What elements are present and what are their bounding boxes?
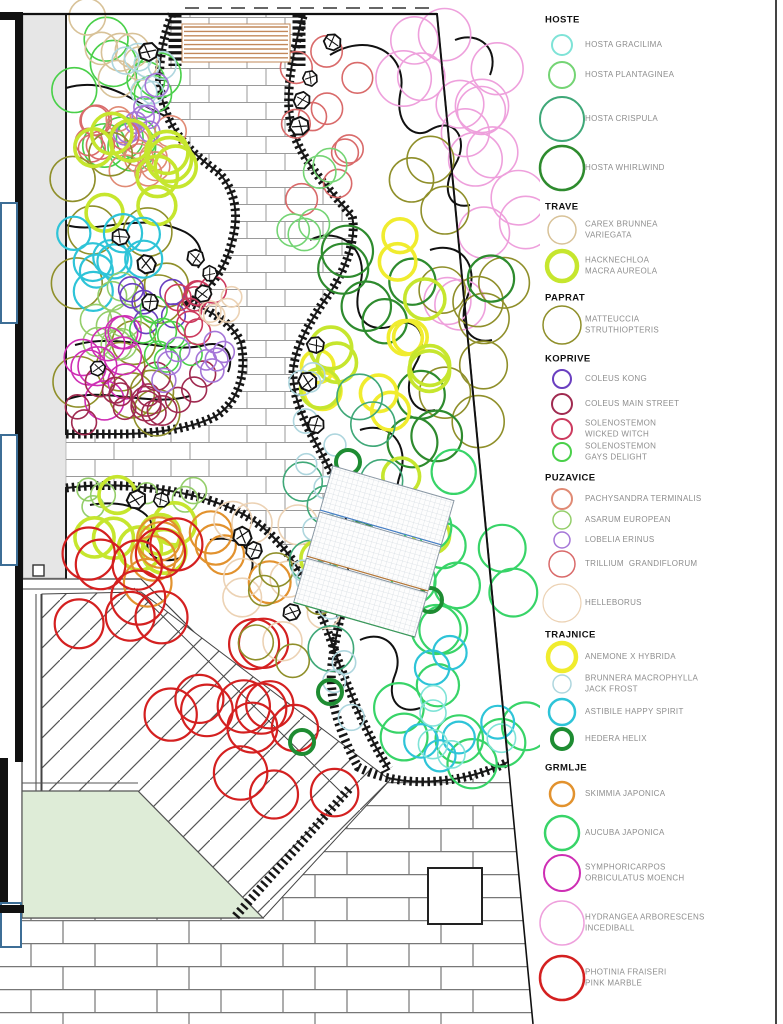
legend-section-header-puzavice: PUZAVICE xyxy=(545,473,596,484)
legend-label-whirlwind: HOSTA WHIRLWIND xyxy=(585,163,665,174)
legend-swatch-mainstreet xyxy=(548,390,576,418)
legend-label-lobelia: LOBELIA ERINUS xyxy=(585,535,655,546)
legend-label-asarum: ASARUM EUROPEAN xyxy=(585,515,671,526)
legend-swatch-hacknechloa xyxy=(540,244,584,288)
legend-swatch-gays xyxy=(549,439,575,465)
legend-swatch-whirlwind xyxy=(535,141,589,195)
legend-swatch-helleborus xyxy=(539,580,585,626)
legend-label-astibile: ASTIBILE HAPPY SPIRIT xyxy=(585,707,684,718)
legend-label-trillium: TRILLIUM GRANDIFLORUM xyxy=(585,559,697,570)
legend-label-hedera: HEDERA HELIX xyxy=(585,734,647,745)
plant-legend-panel: HOSTEHOSTA GRACILIMAHOSTA PLANTAGINEAHOS… xyxy=(540,0,783,1024)
legend-label-plantaginea: HOSTA PLANTAGINEA xyxy=(585,70,674,81)
legend-label-brunnera: BRUNNERA MACROPHYLLA JACK FROST xyxy=(585,674,698,695)
legend-label-pachysandra: PACHYSANDRA TERMINALIS xyxy=(585,494,702,505)
legend-swatch-trillium xyxy=(545,547,579,581)
legend-label-kong: COLEUS KONG xyxy=(585,374,647,385)
legend-swatch-aucuba xyxy=(540,811,584,855)
page-border-line xyxy=(775,0,777,1024)
legend-label-helleborus: HELLEBORUS xyxy=(585,598,642,609)
legend-swatch-gracilima xyxy=(548,31,576,59)
legend-label-carex: CAREX BRUNNEA VARIEGATA xyxy=(585,220,658,241)
legend-label-mainstreet: COLEUS MAIN STREET xyxy=(585,399,679,410)
legend-label-gracilima: HOSTA GRACILIMA xyxy=(585,40,662,51)
legend-swatch-plantaginea xyxy=(545,58,579,92)
legend-swatch-symphoricarpos xyxy=(540,851,584,895)
legend-label-crispula: HOSTA CRISPULA xyxy=(585,114,658,125)
legend-label-wicked: SOLENOSTEMON WICKED WITCH xyxy=(585,419,656,440)
legend-label-hacknechloa: HACKNECHLOA MACRA AUREOLA xyxy=(585,256,657,277)
legend-section-header-grmlje: GRMLJE xyxy=(545,763,587,774)
landscape-plan-page: HOSTEHOSTA GRACILIMAHOSTA PLANTAGINEAHOS… xyxy=(0,0,783,1024)
legend-swatch-crispula xyxy=(536,93,588,145)
legend-swatch-carex xyxy=(544,212,580,248)
legend-label-gays: SOLENOSTEMON GAYS DELIGHT xyxy=(585,442,656,463)
legend-swatch-kong xyxy=(549,366,575,392)
legend-swatch-hedera xyxy=(546,723,578,755)
legend-label-symphoricarpos: SYMPHORICARPOS ORBICULATUS MOENCH xyxy=(585,863,684,884)
legend-section-header-trave: TRAVE xyxy=(545,202,579,213)
garden-plan-drawing xyxy=(0,0,540,1024)
legend-label-matteuccia: MATTEUCCIA STRUTHIOPTERIS xyxy=(585,315,659,336)
garden-plan-canvas xyxy=(0,0,540,1024)
legend-swatch-hydrangea xyxy=(536,897,588,949)
legend-label-aucuba: AUCUBA JAPONICA xyxy=(585,828,665,839)
legend-section-header-hoste: HOSTE xyxy=(545,15,580,26)
legend-swatch-matteuccia xyxy=(539,302,585,348)
legend-swatch-skimmia xyxy=(545,777,579,811)
legend-label-hydrangea: HYDRANGEA ARBORESCENS INCEDIBALL xyxy=(585,913,705,934)
legend-swatch-photinia xyxy=(535,951,589,1005)
legend-section-header-koprive: KOPRIVE xyxy=(545,354,591,365)
legend-label-skimmia: SKIMMIA JAPONICA xyxy=(585,789,665,800)
legend-label-photinia: PHOTINIA FRAISERI PINK MARBLE xyxy=(585,968,667,989)
legend-label-anemone: ANEMONE X HYBRIDA xyxy=(585,652,676,663)
